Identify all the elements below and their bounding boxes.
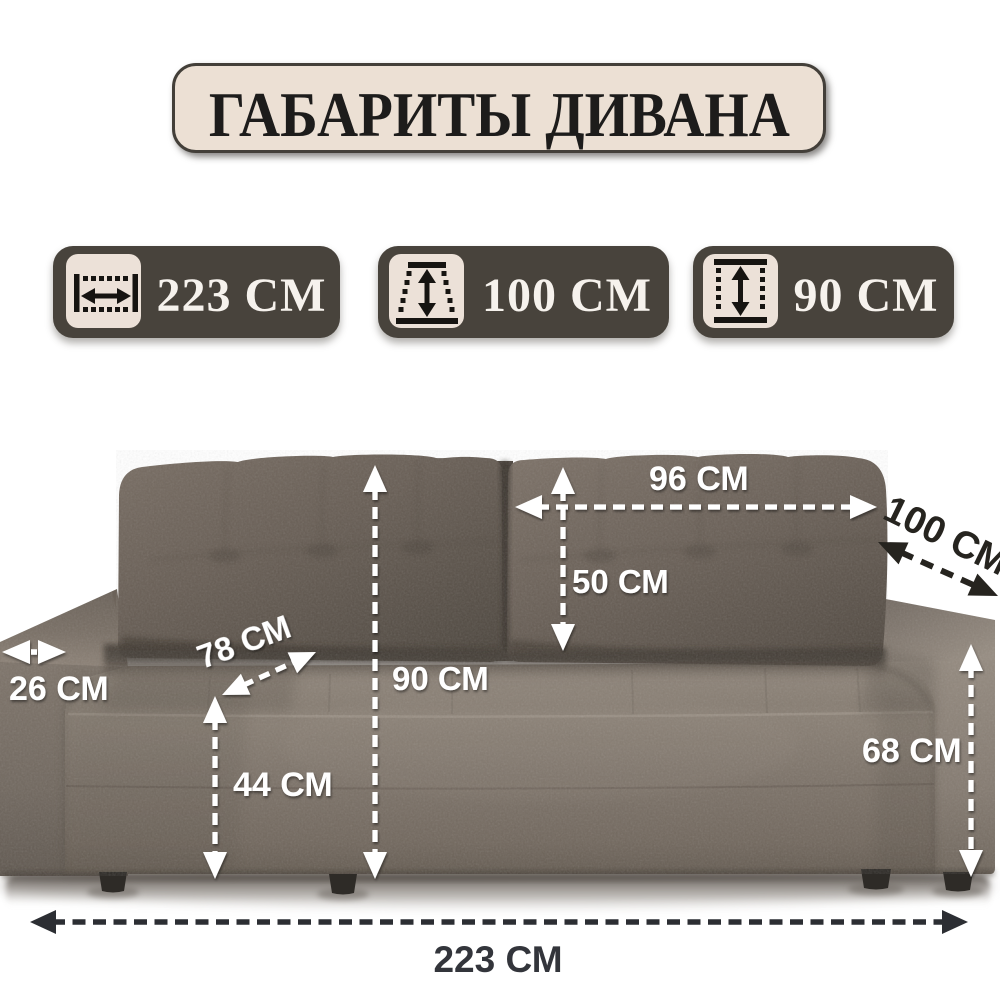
svg-text:44 СМ: 44 СМ — [233, 766, 333, 804]
svg-text:26 СМ: 26 СМ — [9, 670, 109, 708]
svg-text:68 СМ: 68 СМ — [862, 732, 962, 770]
svg-text:100 СМ: 100 СМ — [877, 488, 1000, 584]
svg-text:50 СМ: 50 СМ — [572, 563, 669, 600]
svg-text:90 СМ: 90 СМ — [392, 660, 489, 697]
svg-text:96 СМ: 96 СМ — [649, 460, 749, 498]
svg-text:223 СМ: 223 СМ — [433, 939, 562, 980]
